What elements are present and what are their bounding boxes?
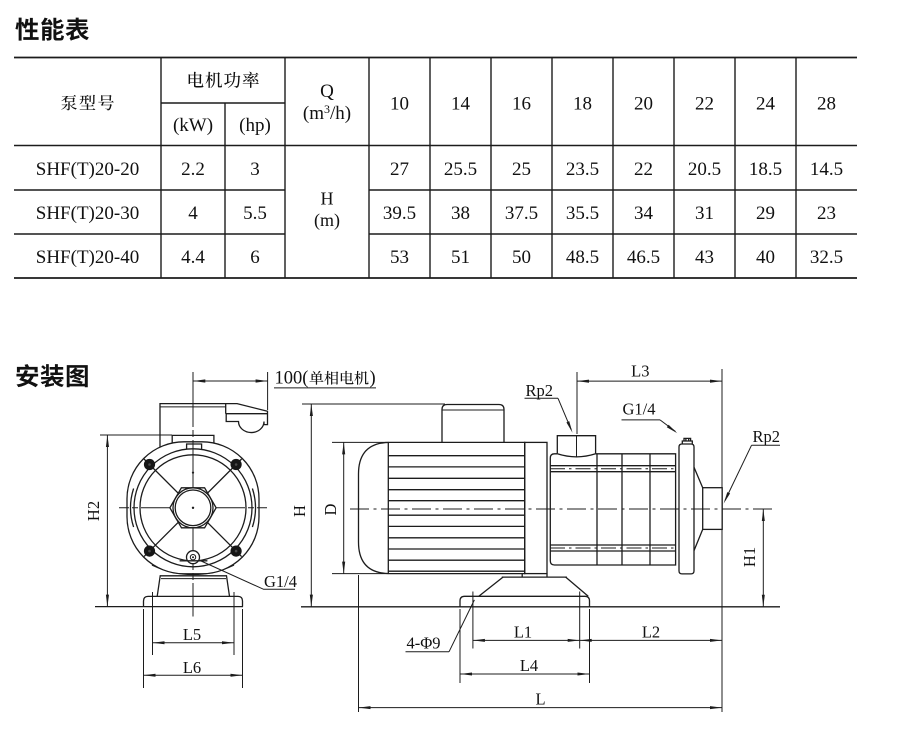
svg-text:18: 18 [573,94,592,115]
svg-text:43: 43 [695,247,714,268]
svg-text:(hp): (hp) [239,115,271,136]
svg-text:H1: H1 [740,547,759,567]
svg-text:22: 22 [695,94,714,115]
svg-text:Rp2: Rp2 [526,381,554,400]
svg-text:H: H [321,189,334,209]
svg-text:34: 34 [634,203,654,224]
svg-text:48.5: 48.5 [566,247,599,268]
svg-text:35.5: 35.5 [566,203,599,224]
svg-text:23.5: 23.5 [566,159,599,180]
svg-text:L3: L3 [631,362,649,381]
svg-text:24: 24 [756,94,776,115]
svg-text:Q: Q [320,81,334,102]
svg-text:53: 53 [390,247,409,268]
svg-text:51: 51 [451,247,470,268]
svg-text:6: 6 [250,247,260,268]
svg-text:5.5: 5.5 [243,203,267,224]
svg-text:20.5: 20.5 [688,159,721,180]
svg-text:37.5: 37.5 [505,203,538,224]
svg-text:): ) [370,369,376,389]
svg-text:4.4: 4.4 [181,247,205,268]
svg-text:L: L [535,689,545,708]
svg-text:23: 23 [817,203,836,224]
svg-text:31: 31 [695,203,714,224]
svg-text:(kW): (kW) [173,115,213,136]
svg-text:18.5: 18.5 [749,159,782,180]
svg-text:H2: H2 [84,501,103,521]
svg-text:L4: L4 [520,656,538,675]
svg-text:3: 3 [250,159,260,180]
svg-text:SHF(T)20-20: SHF(T)20-20 [36,159,139,180]
svg-text:16: 16 [512,94,531,115]
svg-text:40: 40 [756,247,775,268]
svg-text:27: 27 [390,159,409,180]
svg-text:38: 38 [451,203,470,224]
svg-text:100(: 100( [275,369,309,389]
svg-text:L2: L2 [642,622,660,641]
svg-text:20: 20 [634,94,653,115]
svg-text:39.5: 39.5 [383,203,416,224]
svg-text:14.5: 14.5 [810,159,843,180]
svg-text:14: 14 [451,94,471,115]
svg-text:29: 29 [756,203,775,224]
svg-text:H: H [290,505,309,517]
svg-text:46.5: 46.5 [627,247,660,268]
svg-text:4-Φ9: 4-Φ9 [407,633,441,652]
svg-text:28: 28 [817,94,836,115]
svg-text:(m): (m) [314,210,340,231]
svg-text:4: 4 [188,203,198,224]
svg-text:Rp2: Rp2 [753,427,781,446]
svg-text:25.5: 25.5 [444,159,477,180]
svg-text:L1: L1 [514,622,532,641]
svg-text:G1/4: G1/4 [623,399,656,418]
svg-text:25: 25 [512,159,531,180]
svg-text:L5: L5 [183,625,201,644]
svg-text:2.2: 2.2 [181,159,205,180]
svg-text:10: 10 [390,94,409,115]
svg-text:22: 22 [634,159,653,180]
svg-text:L6: L6 [183,658,201,677]
svg-text:D: D [321,503,340,515]
svg-text:32.5: 32.5 [810,247,843,268]
svg-text:G1/4: G1/4 [264,572,297,591]
svg-text:50: 50 [512,247,531,268]
svg-text:SHF(T)20-40: SHF(T)20-40 [36,247,139,268]
svg-text:SHF(T)20-30: SHF(T)20-30 [36,203,139,224]
